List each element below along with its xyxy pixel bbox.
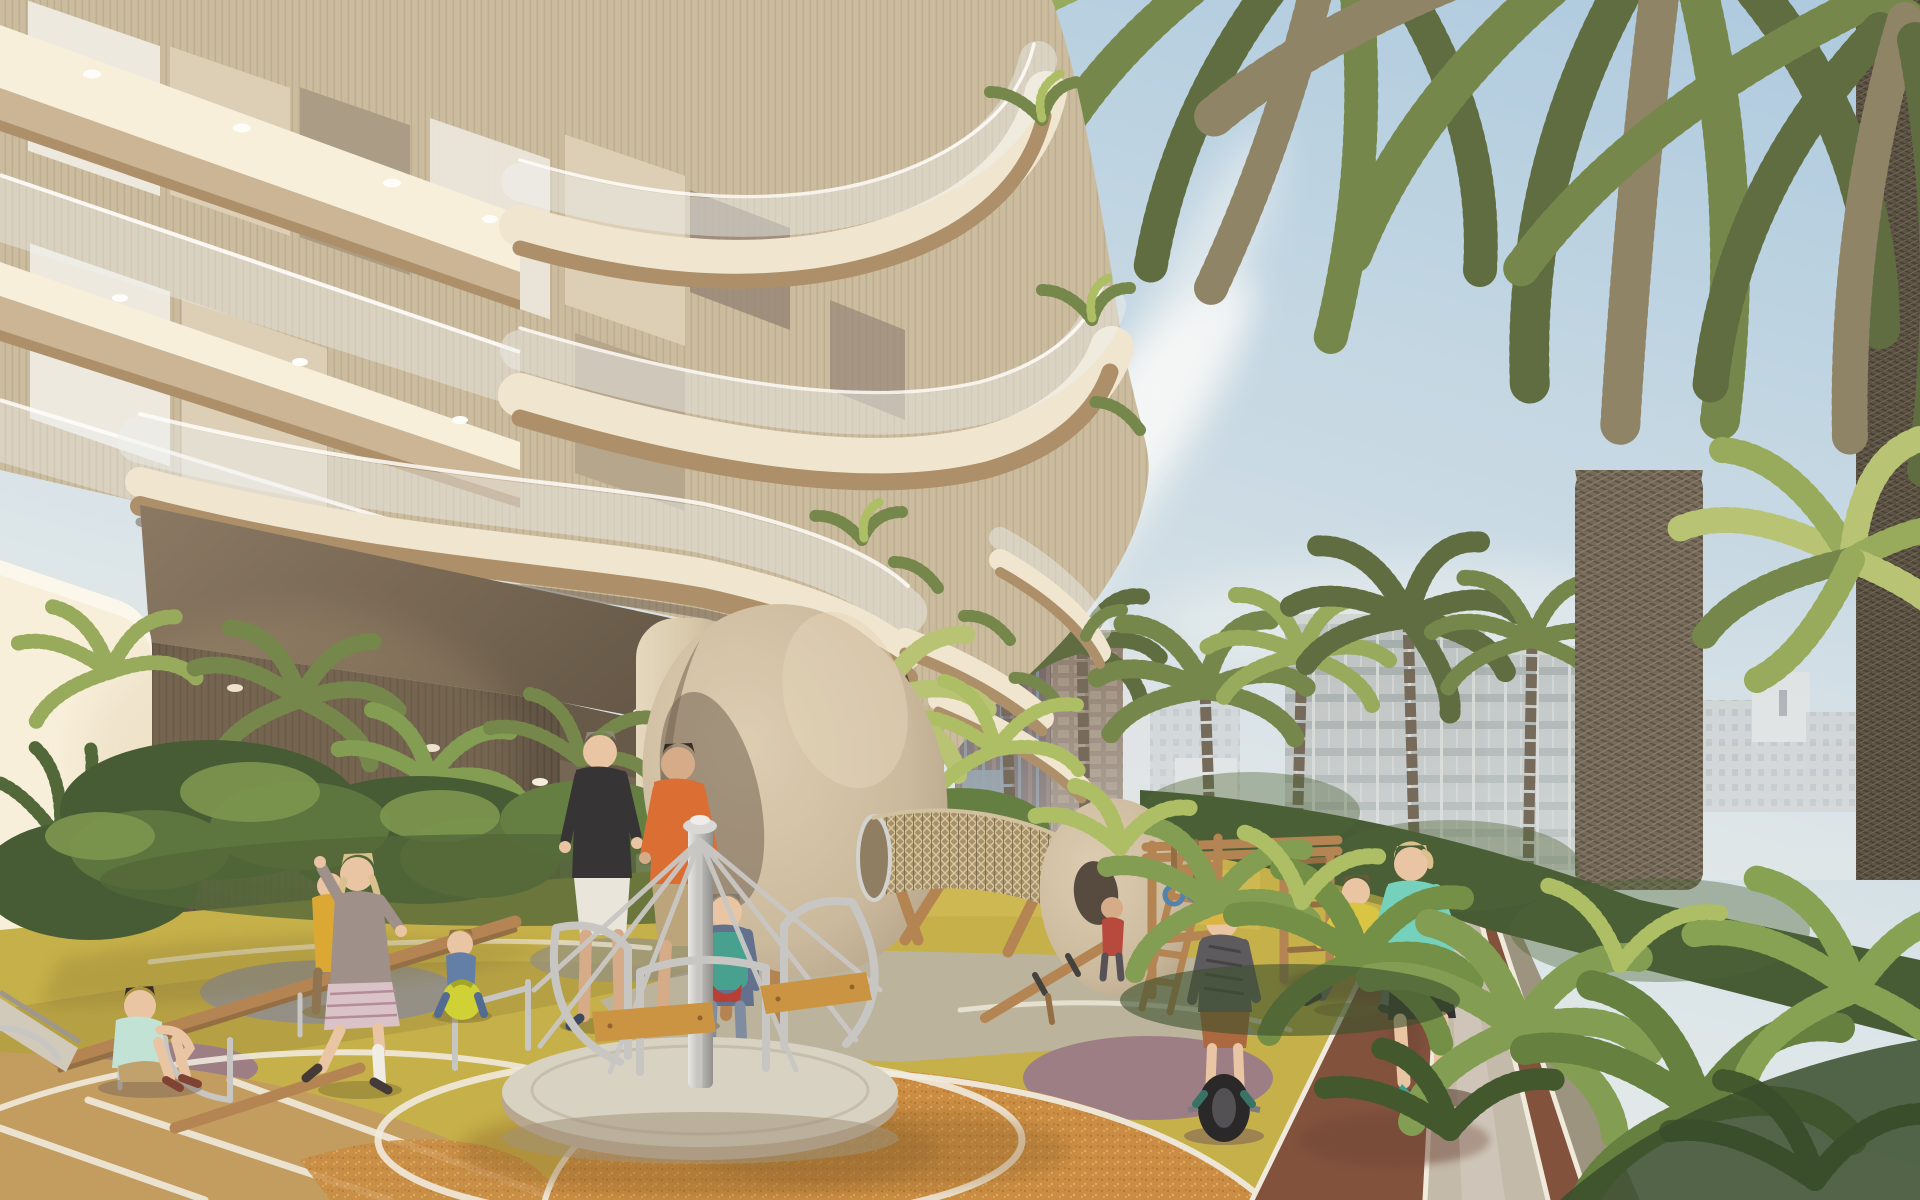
- warm-grade-overlay: [0, 0, 1920, 1200]
- scene-canvas: [0, 0, 1920, 1200]
- rendered-scene: Architectural rendering: residential tow…: [0, 0, 1920, 1200]
